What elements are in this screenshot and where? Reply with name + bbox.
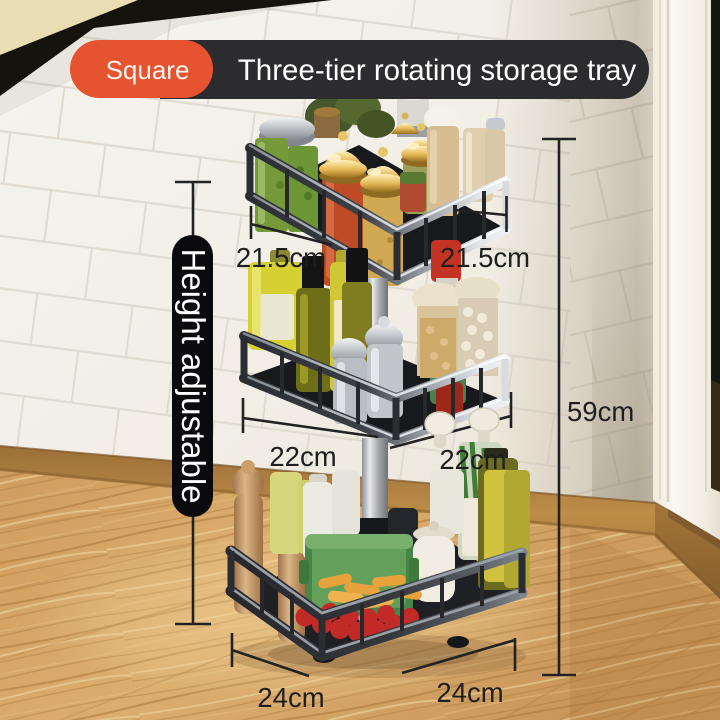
svg-text:Height adjustable: Height adjustable bbox=[175, 248, 212, 503]
svg-text:24cm: 24cm bbox=[257, 682, 324, 713]
svg-text:22cm: 22cm bbox=[439, 444, 506, 475]
svg-text:Square: Square bbox=[106, 55, 190, 85]
svg-text:21.5cm: 21.5cm bbox=[236, 242, 326, 273]
svg-text:21.5cm: 21.5cm bbox=[440, 242, 530, 273]
svg-text:Three-tier rotating storage tr: Three-tier rotating storage tray bbox=[238, 54, 637, 87]
svg-text:59cm: 59cm bbox=[567, 396, 634, 427]
svg-text:24cm: 24cm bbox=[436, 677, 503, 708]
svg-text:22cm: 22cm bbox=[269, 441, 336, 472]
